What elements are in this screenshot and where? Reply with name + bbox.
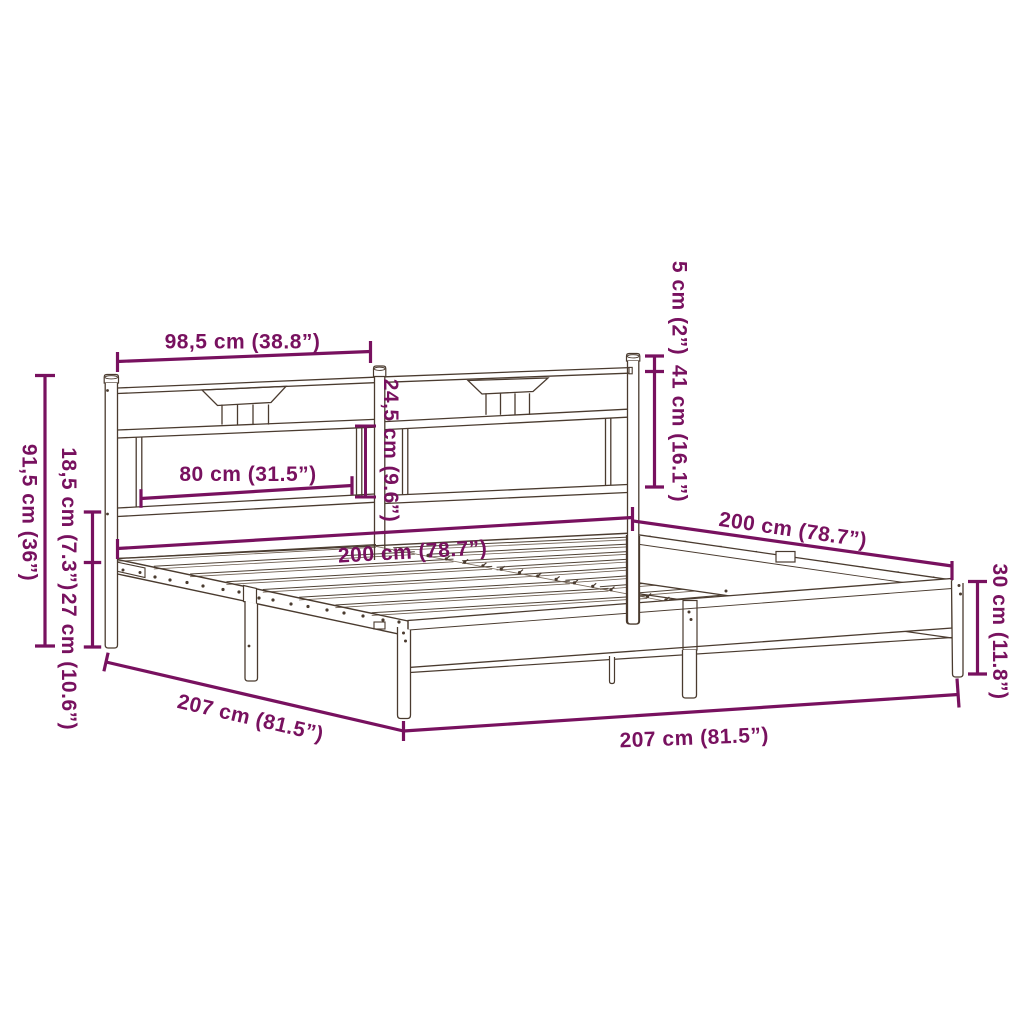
svg-text:91,5 cm (36”): 91,5 cm (36”) <box>18 444 41 581</box>
svg-text:27 cm (10.6”): 27 cm (10.6”) <box>57 593 80 730</box>
svg-text:41 cm (16.1”): 41 cm (16.1”) <box>668 365 691 502</box>
svg-text:18,5 cm (7.3”): 18,5 cm (7.3”) <box>57 447 80 591</box>
svg-text:80 cm (31.5”): 80 cm (31.5”) <box>179 463 316 486</box>
svg-text:5 cm (2”): 5 cm (2”) <box>668 261 691 355</box>
svg-text:24,5 cm (9.6”): 24,5 cm (9.6”) <box>379 379 402 523</box>
svg-text:30 cm (11.8”): 30 cm (11.8”) <box>988 563 1011 699</box>
svg-text:98,5 cm (38.8”): 98,5 cm (38.8”) <box>165 331 321 354</box>
